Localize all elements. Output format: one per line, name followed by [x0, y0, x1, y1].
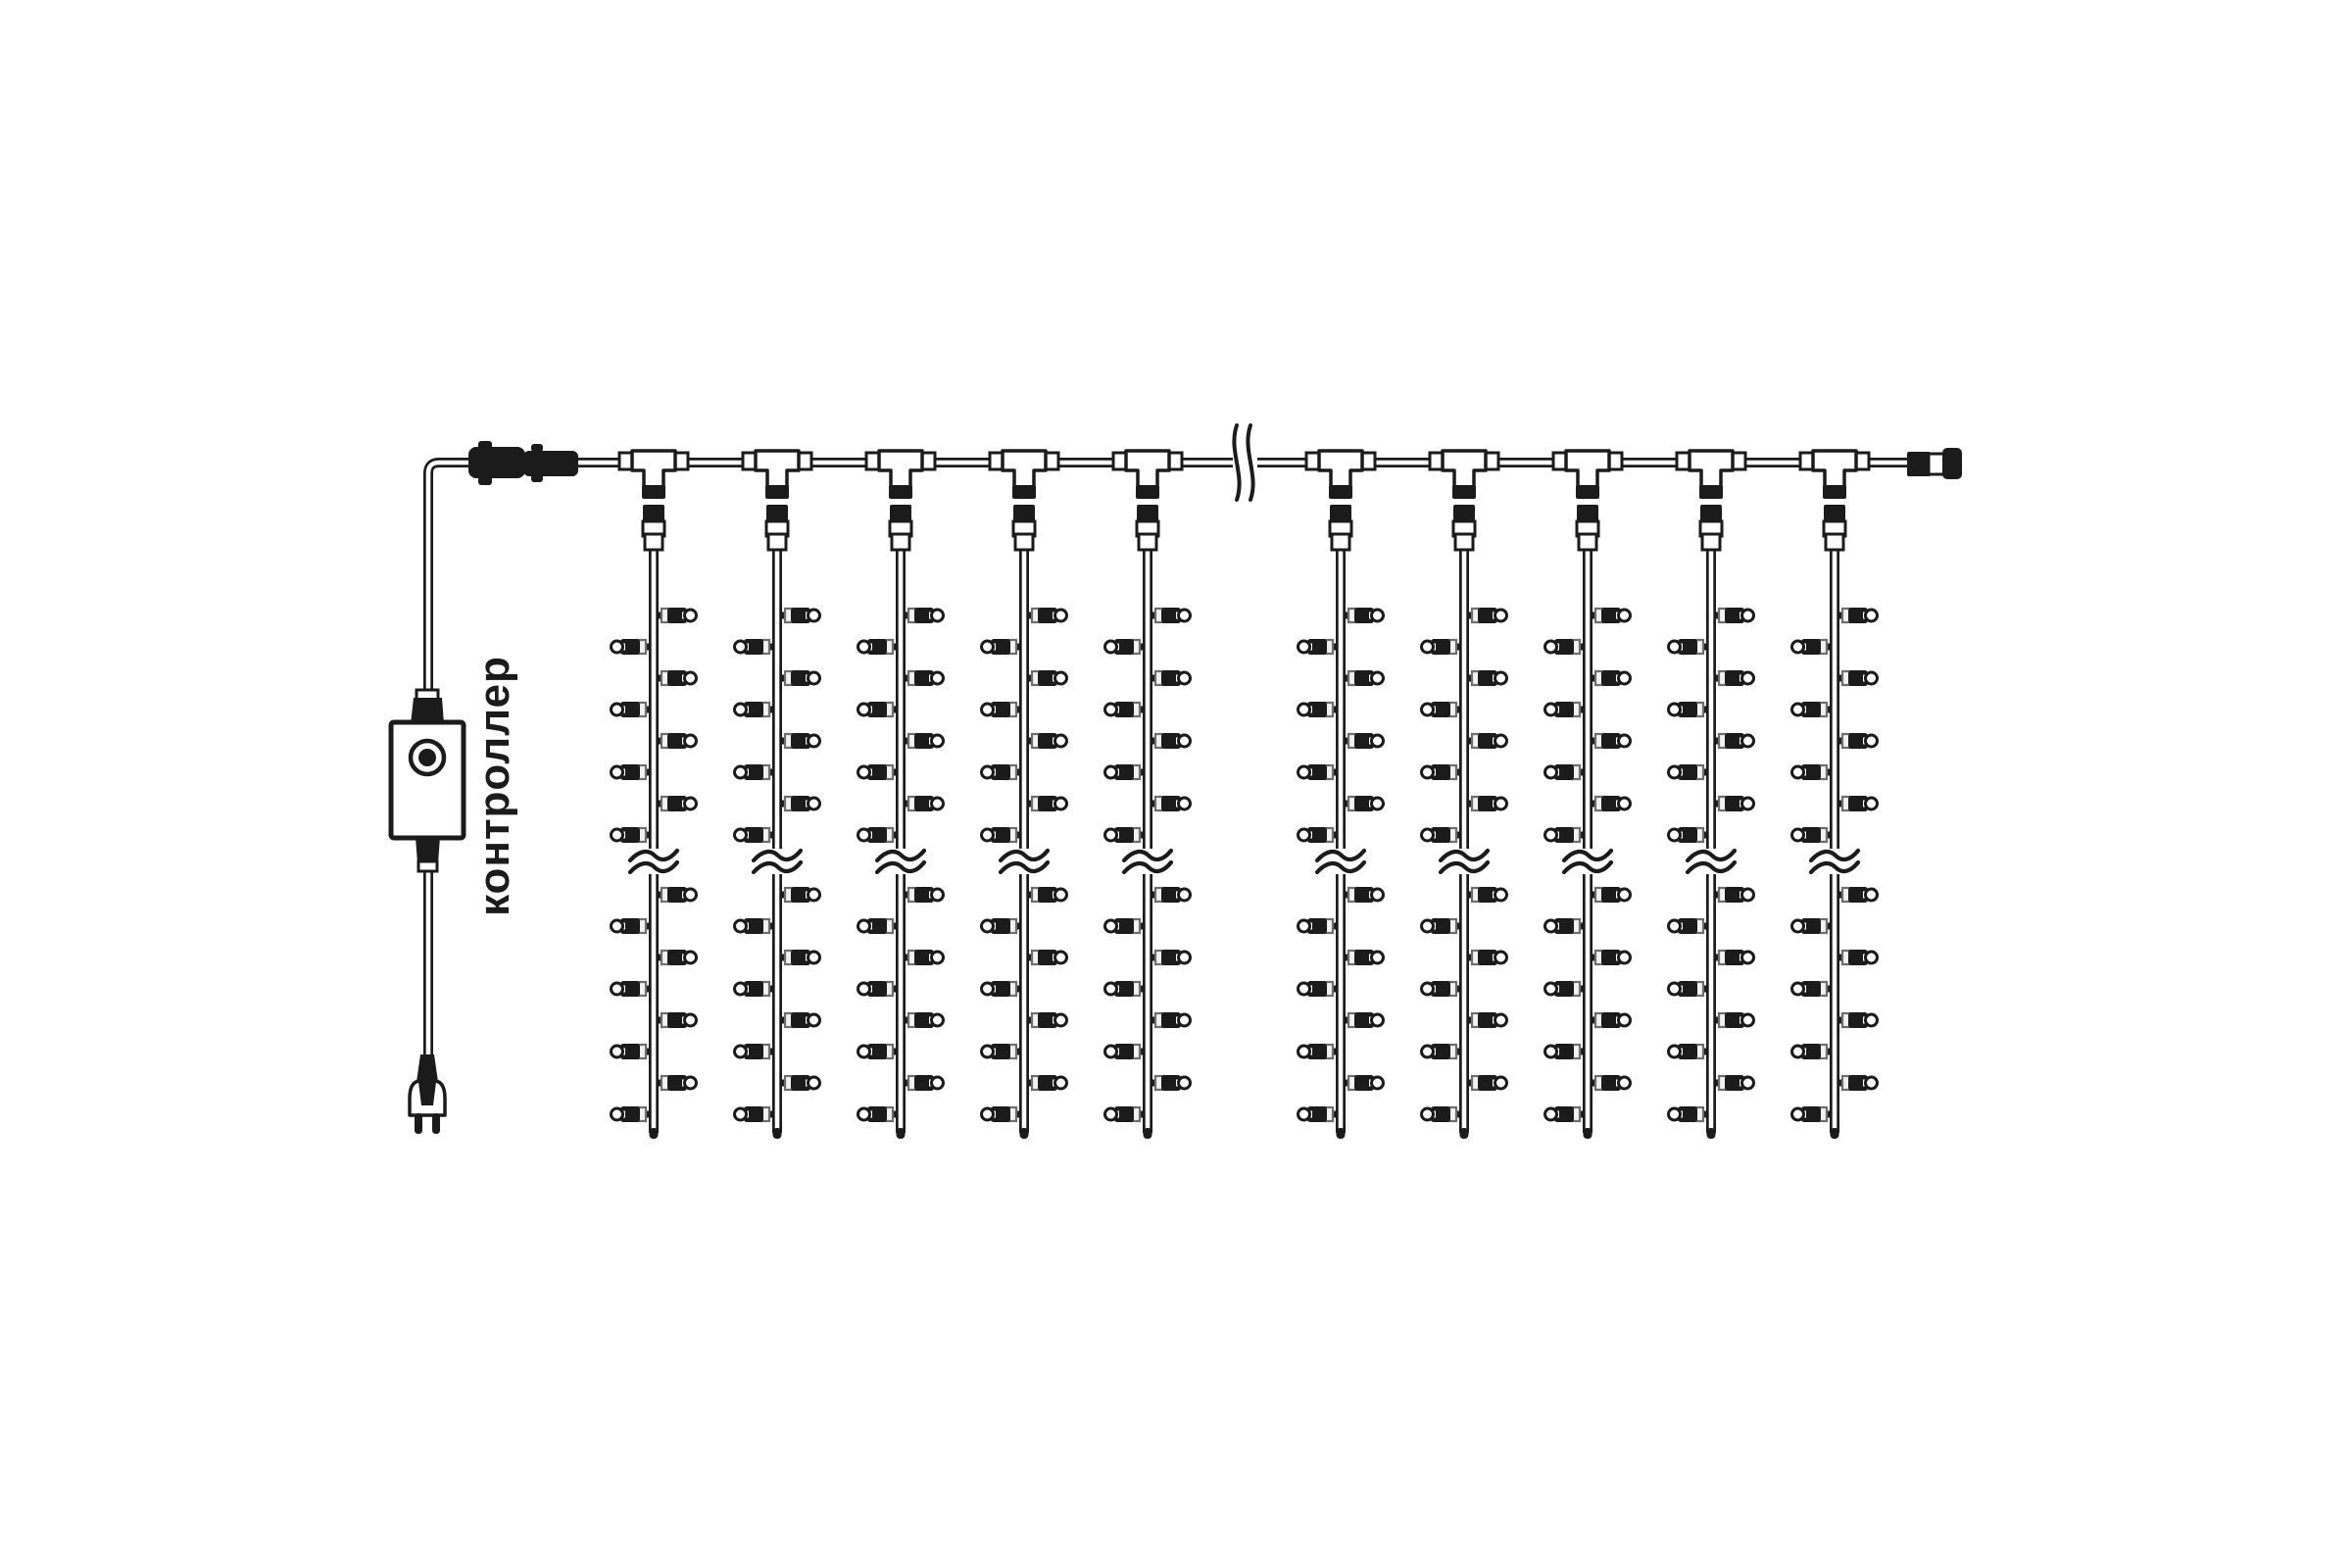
bulb — [1345, 796, 1384, 811]
strand-end-tip — [897, 1128, 906, 1139]
bulb — [1545, 639, 1585, 655]
plug-prong — [432, 1113, 440, 1134]
bulb-lens — [858, 704, 870, 715]
bulb-lens — [808, 1077, 820, 1089]
bulb — [1151, 608, 1191, 623]
bulb — [1592, 670, 1631, 686]
bulb — [1028, 608, 1067, 623]
bulb — [1468, 950, 1507, 965]
bulb-lens — [1866, 952, 1878, 963]
bulb — [1592, 608, 1631, 623]
t-stem-band — [889, 485, 912, 499]
bulb-lens — [1792, 766, 1804, 778]
t-side-coupler — [1113, 453, 1126, 469]
bulb — [1592, 950, 1631, 965]
bulb-lens — [1298, 829, 1310, 841]
bulb-lens — [1105, 766, 1117, 778]
t-connector — [1113, 451, 1182, 550]
strand-end-tip — [1831, 1128, 1839, 1139]
light-strand — [858, 451, 944, 1139]
strand-end-tip — [650, 1128, 659, 1139]
bulb-lens — [1179, 1077, 1191, 1089]
bulb — [1545, 1044, 1585, 1059]
bulb — [658, 608, 697, 623]
bulb-lens — [1179, 735, 1191, 747]
strand-break-mark — [877, 851, 924, 860]
bulb-lens — [1055, 798, 1067, 809]
strand-break-mark — [1811, 862, 1858, 872]
light-strand — [1669, 451, 1754, 1139]
bulb-lens — [808, 672, 820, 684]
bulb-lens — [1422, 829, 1434, 841]
bulb — [982, 764, 1021, 780]
t-body — [1813, 451, 1856, 488]
light-strand — [1545, 451, 1631, 1139]
bulb-lens — [982, 766, 994, 778]
t-side-coupler — [1430, 453, 1443, 469]
bulb-lens — [735, 829, 747, 841]
t-side-coupler — [1046, 453, 1058, 469]
t-body — [632, 451, 675, 488]
strand-end-tip — [773, 1128, 782, 1139]
bulb — [1468, 1012, 1507, 1028]
t-side-coupler — [1677, 453, 1690, 469]
strand-plug-tip — [1139, 534, 1156, 550]
strand-plug-tip — [1455, 534, 1473, 550]
bulb-lens — [1866, 1077, 1878, 1089]
bulb — [1422, 639, 1461, 655]
t-stem-band — [642, 485, 665, 499]
strand-end-tip — [1460, 1128, 1469, 1139]
bulb — [658, 796, 697, 811]
bulb — [1345, 733, 1384, 749]
bulb — [1422, 827, 1461, 843]
bulb — [905, 887, 944, 903]
curtain-light-diagram — [0, 0, 2352, 1568]
bulb-lens — [612, 829, 623, 841]
bulb-lens — [1669, 766, 1681, 778]
coupling-connector — [468, 441, 578, 485]
bulb — [1592, 1075, 1631, 1091]
light-strand — [1792, 451, 1878, 1139]
bulb-lens — [1619, 889, 1631, 901]
bulb-lens — [1742, 798, 1754, 809]
bulb-lens — [1792, 1046, 1804, 1057]
bulb-lens — [932, 672, 944, 684]
bulb — [1669, 918, 1708, 934]
t-stem-band — [1452, 485, 1476, 499]
bulb-lens — [1669, 829, 1681, 841]
bulb — [1028, 1012, 1067, 1028]
bulb-lens — [1619, 735, 1631, 747]
t-connector — [619, 451, 688, 550]
bulb — [1468, 887, 1507, 903]
t-stem-band — [1136, 485, 1159, 499]
controller-bottom-neck — [416, 837, 440, 863]
bulb — [1298, 827, 1338, 843]
controller — [391, 690, 464, 871]
bulb — [1715, 733, 1754, 749]
bulb-lens — [1055, 610, 1067, 621]
bulb-lens — [1179, 889, 1191, 901]
bulb-lens — [982, 920, 994, 932]
bulb-lens — [808, 889, 820, 901]
bulb — [1545, 1106, 1585, 1122]
bulb-lens — [1495, 798, 1507, 809]
bulb — [1792, 827, 1832, 843]
bulb-lens — [1792, 641, 1804, 653]
bulb — [982, 702, 1021, 717]
bulb — [905, 796, 944, 811]
controller-label: контроллер — [472, 639, 517, 933]
t-side-coupler — [1733, 453, 1745, 469]
bulb — [1838, 796, 1878, 811]
bulb-lens — [1055, 672, 1067, 684]
bulb — [1151, 670, 1191, 686]
bulb — [612, 1106, 651, 1122]
bulb-lens — [1495, 672, 1507, 684]
bulb-lens — [1298, 704, 1310, 715]
t-body — [1690, 451, 1733, 488]
light-strand — [735, 451, 820, 1139]
bulb — [1028, 796, 1067, 811]
bulb — [1792, 1044, 1832, 1059]
bulb — [1468, 796, 1507, 811]
bulb-lens — [982, 1046, 994, 1057]
bulb-lens — [1619, 952, 1631, 963]
bulb — [1545, 764, 1585, 780]
light-strand — [612, 451, 697, 1139]
bulb-lens — [858, 983, 870, 995]
bulb — [1345, 670, 1384, 686]
bulb-lens — [982, 1108, 994, 1120]
bulb-lens — [735, 983, 747, 995]
bulb — [1345, 950, 1384, 965]
bulb — [1298, 702, 1338, 717]
bulb — [1838, 1012, 1878, 1028]
bulb — [1105, 702, 1145, 717]
strand-end-tip — [1707, 1128, 1716, 1139]
bulb-lens — [612, 1108, 623, 1120]
t-side-coupler — [990, 453, 1003, 469]
bulb-lens — [1742, 889, 1754, 901]
light-strand — [1422, 451, 1507, 1139]
bulb-lens — [1298, 1108, 1310, 1120]
bulb-lens — [1742, 735, 1754, 747]
bulb-lens — [808, 798, 820, 809]
bulb — [1792, 981, 1832, 997]
bulb — [612, 981, 651, 997]
bulb-lens — [1545, 983, 1557, 995]
bulb-lens — [685, 1014, 697, 1026]
bulb — [1838, 608, 1878, 623]
bulb — [1105, 639, 1145, 655]
bulb — [1669, 1106, 1708, 1122]
bulb-lens — [1055, 1077, 1067, 1089]
bulb-lens — [858, 1108, 870, 1120]
bulb-lens — [685, 798, 697, 809]
bulb-lens — [1105, 983, 1117, 995]
t-side-coupler — [922, 453, 935, 469]
power-plug — [410, 1054, 445, 1134]
bulb — [735, 1044, 774, 1059]
bulb — [1792, 918, 1832, 934]
bulb — [1028, 1075, 1067, 1091]
plug-neck — [416, 1054, 438, 1082]
bulb-lens — [1055, 1014, 1067, 1026]
strand-break-mark — [877, 862, 924, 872]
bulb — [858, 1044, 898, 1059]
bulb — [905, 1012, 944, 1028]
t-side-coupler — [1306, 453, 1319, 469]
bulb-lens — [982, 829, 994, 841]
t-side-coupler — [799, 453, 811, 469]
bulb-lens — [1105, 1046, 1117, 1057]
bulb — [1669, 639, 1708, 655]
wire-break-mark — [1234, 425, 1239, 500]
bulb-lens — [1669, 704, 1681, 715]
bulb-lens — [932, 952, 944, 963]
bulb — [1298, 1106, 1338, 1122]
strand-break-mark — [1688, 851, 1735, 860]
curtain-lights-diagram-page: контроллер — [0, 0, 2352, 1568]
bulb — [735, 918, 774, 934]
bulb-lens — [685, 610, 697, 621]
bulb — [1715, 1075, 1754, 1091]
bulb-lens — [1495, 735, 1507, 747]
bulb-lens — [612, 641, 623, 653]
bulb-lens — [1179, 798, 1191, 809]
bulb — [1422, 1044, 1461, 1059]
strand-plug-tip — [1579, 534, 1596, 550]
bulb — [1669, 981, 1708, 997]
bulb — [1105, 827, 1145, 843]
bulb — [781, 1012, 820, 1028]
bulb-lens — [1669, 920, 1681, 932]
t-connector — [1553, 451, 1622, 550]
t-connector — [990, 451, 1058, 550]
bulb — [1669, 1044, 1708, 1059]
bulb — [1151, 733, 1191, 749]
wire-break-mark — [1248, 425, 1252, 500]
bulb-lens — [1179, 1014, 1191, 1026]
bulb — [1468, 1075, 1507, 1091]
t-side-coupler — [1169, 453, 1182, 469]
bulb-lens — [1422, 704, 1434, 715]
strand-end-tip — [1020, 1128, 1029, 1139]
bulb — [781, 887, 820, 903]
bulb — [1151, 887, 1191, 903]
bulb — [982, 639, 1021, 655]
bulb — [1592, 1012, 1631, 1028]
bulb-lens — [735, 641, 747, 653]
bulb-lens — [1545, 641, 1557, 653]
bulb — [858, 764, 898, 780]
strand-break-mark — [1441, 862, 1488, 872]
bulb — [1028, 733, 1067, 749]
bulb — [735, 981, 774, 997]
bulb-lens — [1742, 952, 1754, 963]
bulb — [781, 608, 820, 623]
bulb — [1545, 918, 1585, 934]
bulb-lens — [1105, 920, 1117, 932]
bulb — [905, 950, 944, 965]
bulb — [1151, 1075, 1191, 1091]
bulb — [1151, 796, 1191, 811]
bulb — [982, 1106, 1021, 1122]
bulb — [1028, 887, 1067, 903]
bulb — [1792, 702, 1832, 717]
bulb-lens — [1495, 610, 1507, 621]
bulb-lens — [1372, 952, 1384, 963]
strand-break-mark — [1811, 851, 1858, 860]
strand-plug-tip — [1826, 534, 1843, 550]
bulb — [1838, 950, 1878, 965]
bulb-lens — [1619, 610, 1631, 621]
bulb-lens — [1179, 610, 1191, 621]
t-side-coupler — [1362, 453, 1375, 469]
bulb — [658, 1075, 697, 1091]
bulb-lens — [932, 889, 944, 901]
bulb-lens — [1372, 798, 1384, 809]
bulb-lens — [1495, 952, 1507, 963]
bulb — [1345, 887, 1384, 903]
t-body — [756, 451, 799, 488]
bulb-lens — [1619, 1014, 1631, 1026]
bulb — [1105, 1044, 1145, 1059]
bulb — [1792, 1106, 1832, 1122]
strand-plug-tip — [1702, 534, 1720, 550]
strand-break-mark — [754, 862, 801, 872]
bulb-lens — [858, 829, 870, 841]
bulb — [658, 887, 697, 903]
t-body — [1003, 451, 1046, 488]
bulb — [858, 827, 898, 843]
bulb-lens — [1298, 983, 1310, 995]
bulb-lens — [1105, 829, 1117, 841]
bulb — [982, 827, 1021, 843]
bulb — [1345, 1012, 1384, 1028]
t-connector — [1430, 451, 1498, 550]
bulb — [1838, 670, 1878, 686]
strand-break-mark — [1124, 862, 1171, 872]
strand-end-tip — [1337, 1128, 1346, 1139]
strand-plug-tip — [1015, 534, 1033, 550]
t-body — [879, 451, 922, 488]
bulb-lens — [612, 920, 623, 932]
strand-end-tip — [1144, 1128, 1152, 1139]
bulb-lens — [1545, 1108, 1557, 1120]
t-side-coupler — [1800, 453, 1813, 469]
bulb-lens — [1669, 1046, 1681, 1057]
bulb-lens — [1792, 829, 1804, 841]
bulb-lens — [982, 641, 994, 653]
bulb-lens — [1422, 766, 1434, 778]
bulb-lens — [612, 983, 623, 995]
bulb — [735, 702, 774, 717]
bulb-lens — [685, 735, 697, 747]
bulb-lens — [858, 1046, 870, 1057]
strand-break-mark — [630, 862, 677, 872]
bulb-lens — [808, 952, 820, 963]
bulb — [1298, 981, 1338, 997]
bulb — [858, 1106, 898, 1122]
bulb-lens — [982, 704, 994, 715]
strand-break-mark — [1001, 862, 1048, 872]
bulb-lens — [808, 735, 820, 747]
bulb — [735, 639, 774, 655]
bulb-lens — [685, 952, 697, 963]
t-side-coupler — [1856, 453, 1869, 469]
t-stem-band — [765, 485, 789, 499]
plug-body-inner — [418, 1082, 436, 1105]
bulb-lens — [685, 672, 697, 684]
bulb-lens — [1422, 983, 1434, 995]
bulb-lens — [1742, 1077, 1754, 1089]
strand-break-mark — [1317, 862, 1364, 872]
bulb — [1792, 764, 1832, 780]
t-body — [1443, 451, 1486, 488]
bulb — [1592, 733, 1631, 749]
bulb — [1715, 670, 1754, 686]
bulb-lens — [1669, 983, 1681, 995]
bulb — [1838, 1075, 1878, 1091]
bulb — [658, 670, 697, 686]
bulb — [1422, 918, 1461, 934]
bulb-lens — [1669, 641, 1681, 653]
bulb-lens — [1866, 610, 1878, 621]
bulb — [1105, 918, 1145, 934]
bulb — [1715, 1012, 1754, 1028]
bulb — [905, 733, 944, 749]
strand-plug-tip — [892, 534, 909, 550]
t-side-coupler — [619, 453, 632, 469]
t-stem-band — [1329, 485, 1352, 499]
bulb — [1545, 827, 1585, 843]
bulb-lens — [612, 704, 623, 715]
bulb-lens — [1298, 766, 1310, 778]
strand-break-mark — [1317, 851, 1364, 860]
bulb-lens — [1372, 610, 1384, 621]
bulb — [781, 733, 820, 749]
bulb — [1345, 608, 1384, 623]
bulb-lens — [735, 704, 747, 715]
bulb — [1105, 1106, 1145, 1122]
bulb-lens — [1372, 735, 1384, 747]
t-body — [1319, 451, 1362, 488]
bulb-lens — [858, 641, 870, 653]
bulb-lens — [685, 889, 697, 901]
bulb-lens — [1545, 829, 1557, 841]
bulb-lens — [1105, 704, 1117, 715]
strand-break-mark — [1441, 851, 1488, 860]
bulb-lens — [612, 1046, 623, 1057]
bulb-lens — [1792, 920, 1804, 932]
bulb — [1298, 918, 1338, 934]
t-connector — [1677, 451, 1745, 550]
bulb — [1028, 670, 1067, 686]
bulb-lens — [685, 1077, 697, 1089]
bulb-lens — [1372, 1077, 1384, 1089]
bulb-lens — [1866, 672, 1878, 684]
bulb-lens — [1105, 1108, 1117, 1120]
t-side-coupler — [1553, 453, 1566, 469]
t-connector — [743, 451, 811, 550]
bulb-lens — [932, 798, 944, 809]
bulb-lens — [1545, 766, 1557, 778]
bulb — [858, 918, 898, 934]
t-stem-band — [1699, 485, 1723, 499]
